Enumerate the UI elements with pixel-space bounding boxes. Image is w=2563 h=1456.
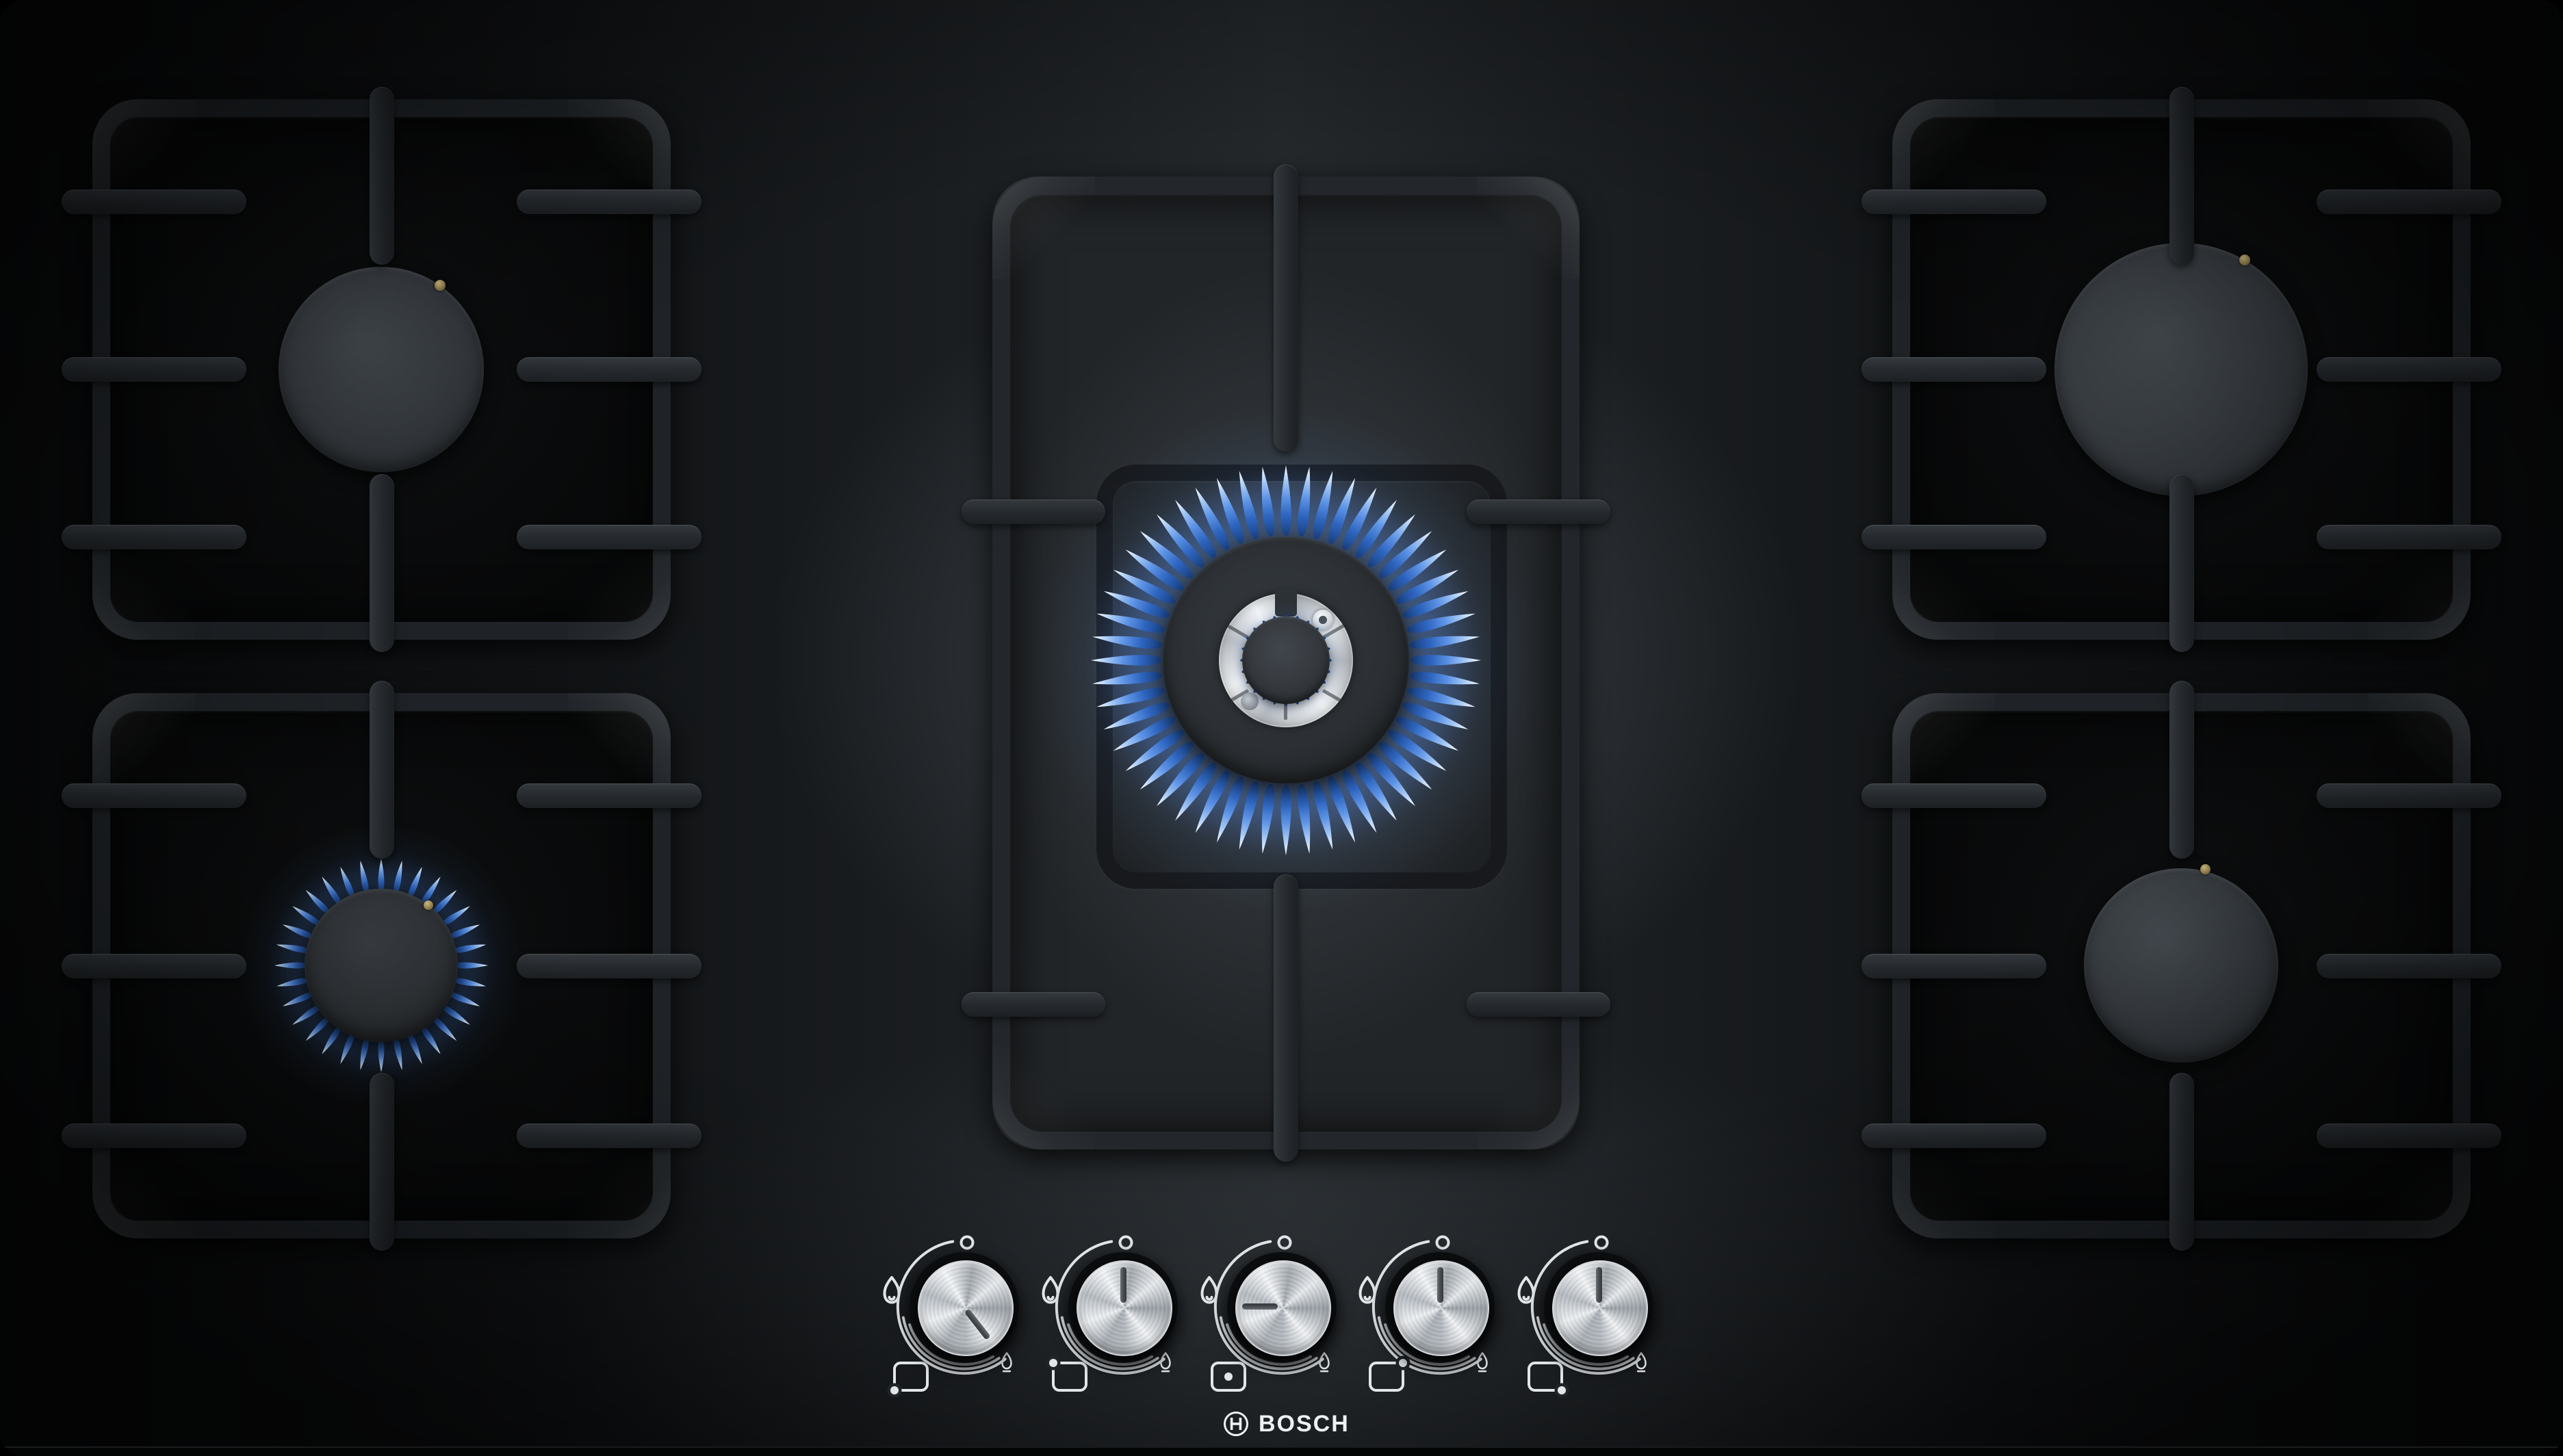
brand-wordmark: BOSCH xyxy=(1259,1411,1350,1438)
burner-knob-bottom-left[interactable] xyxy=(882,1223,1046,1415)
gas-hob-surface: BOSCH xyxy=(0,0,2563,1456)
low-flame-icon xyxy=(1161,1353,1170,1371)
burner-knob-top-left[interactable] xyxy=(1041,1223,1205,1415)
burner-knob-top-right[interactable] xyxy=(1358,1223,1522,1415)
low-flame-icon xyxy=(1319,1353,1328,1371)
off-marker-icon xyxy=(1279,1237,1291,1249)
hob-front-edge xyxy=(0,1446,2563,1456)
off-marker-icon xyxy=(1120,1237,1132,1249)
low-flame-icon xyxy=(1002,1353,1011,1371)
off-marker-icon xyxy=(1437,1237,1449,1249)
burner-position-icon xyxy=(888,1363,928,1398)
burner-position-icon xyxy=(1370,1356,1411,1391)
high-flame-icon xyxy=(1202,1277,1217,1303)
high-flame-icon xyxy=(1044,1277,1058,1303)
low-flame-icon xyxy=(1636,1353,1645,1371)
burner-position-icon xyxy=(1212,1363,1245,1390)
knob-face xyxy=(918,1260,1014,1356)
high-flame-icon xyxy=(1519,1277,1534,1303)
bosch-symbol-icon xyxy=(1222,1410,1250,1438)
high-flame-icon xyxy=(885,1277,899,1303)
burner-position-icon xyxy=(1046,1356,1087,1391)
high-flame-icon xyxy=(1361,1277,1375,1303)
low-flame-icon xyxy=(1478,1353,1486,1371)
bosch-logo: BOSCH xyxy=(1222,1408,1350,1440)
off-marker-icon xyxy=(1596,1237,1608,1249)
burner-position-icon xyxy=(1529,1363,1569,1398)
off-marker-icon xyxy=(962,1237,973,1249)
burner-knob-center[interactable] xyxy=(1200,1223,1364,1415)
control-row xyxy=(0,0,2563,1456)
burner-knob-bottom-right[interactable] xyxy=(1517,1223,1681,1415)
